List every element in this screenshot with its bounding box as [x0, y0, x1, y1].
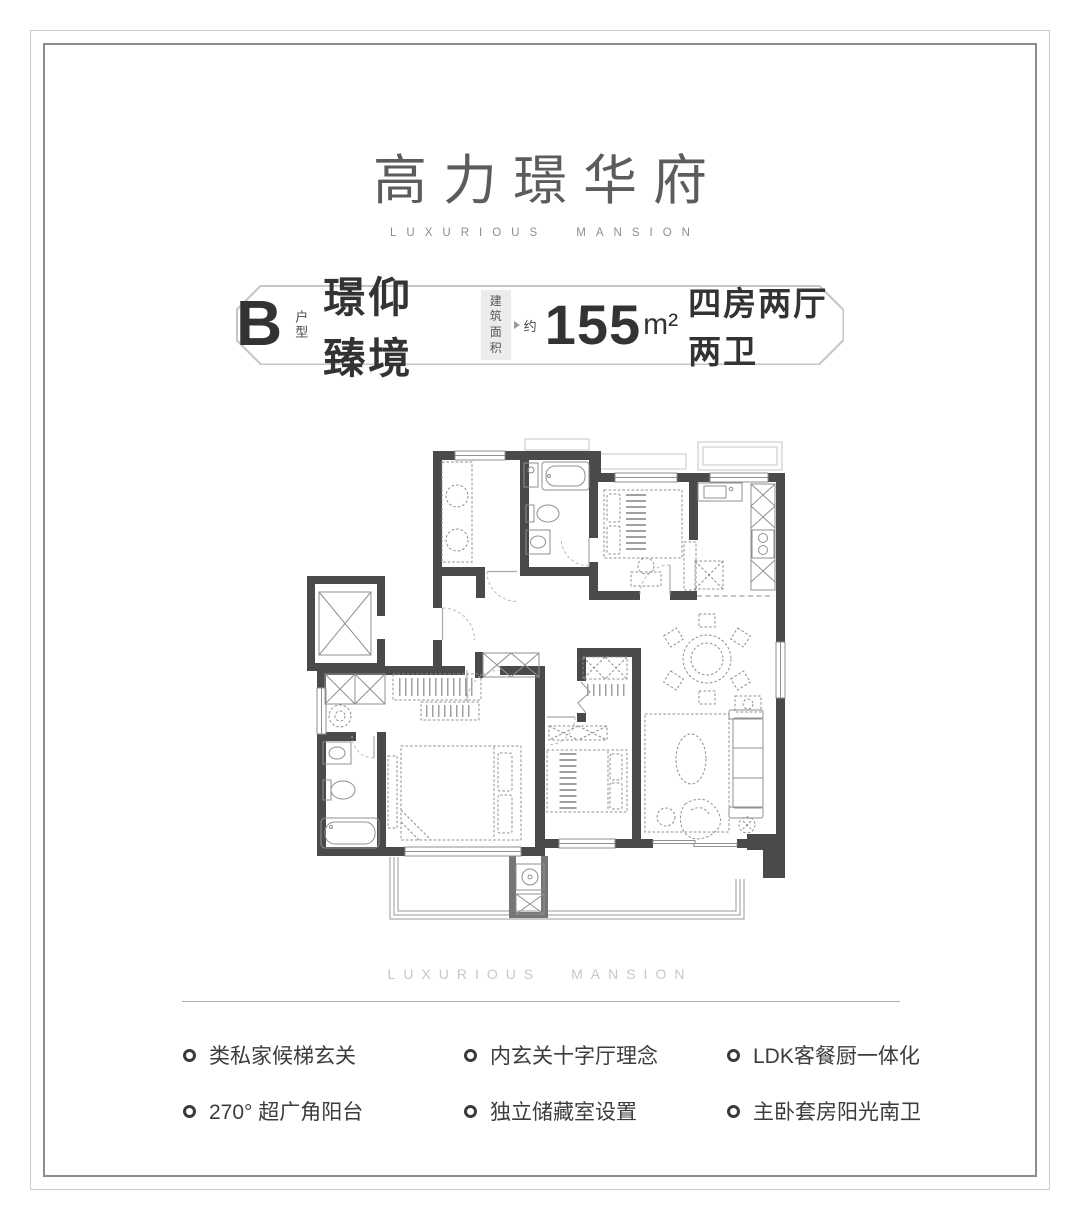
feature-text: 类私家候梯玄关 — [209, 1040, 356, 1070]
living-room-furniture — [645, 696, 763, 839]
kitchen-furniture — [695, 483, 775, 590]
feature-item: 类私家候梯玄关 — [183, 1040, 464, 1070]
brand-title: 高力璟华府 — [0, 136, 1080, 215]
bullet-ring-icon — [183, 1105, 196, 1118]
feature-item: LDK客餐厨一体化 — [727, 1040, 907, 1070]
master-bathroom-furniture — [321, 742, 379, 848]
walls — [307, 451, 785, 918]
unit-letter: B — [236, 291, 282, 355]
feature-text: 主卧套房阳光南卫 — [753, 1096, 921, 1126]
master-dressing-furniture — [325, 674, 481, 727]
feature-item: 270° 超广角阳台 — [183, 1096, 464, 1126]
feature-item: 主卧套房阳光南卫 — [727, 1096, 907, 1126]
bedroom-bottom-center-furniture — [547, 657, 627, 812]
divider-line — [182, 1001, 900, 1002]
divider-caption: LUXURIOUS MANSION — [0, 966, 1080, 982]
feature-text: 内玄关十字厅理念 — [490, 1040, 658, 1070]
master-bedroom-furniture — [388, 746, 521, 840]
feature-item: 独立储藏室设置 — [464, 1096, 727, 1126]
bedroom-top-left-furniture — [442, 462, 472, 562]
feature-list: 类私家候梯玄关 内玄关十字厅理念 LDK客餐厨一体化 270° 超广角阳台 独立… — [183, 1040, 907, 1126]
approx-label: 约 — [524, 316, 537, 335]
bathroom-top-furniture — [524, 462, 589, 554]
area-label-box: 建筑 面积 — [481, 290, 511, 360]
brand-subtitle: LUXURIOUS MANSION — [0, 227, 1080, 239]
balcony-railing — [390, 857, 744, 919]
bullet-ring-icon — [464, 1105, 477, 1118]
bullet-ring-icon — [464, 1049, 477, 1062]
feature-text: LDK客餐厨一体化 — [753, 1040, 920, 1070]
unit-type-label: 户型 — [294, 310, 307, 340]
room-layout-text: 四房两厅两卫 — [688, 277, 844, 373]
feature-item: 内玄关十字厅理念 — [464, 1040, 727, 1070]
area-unit: m² — [643, 308, 678, 342]
windows — [317, 451, 785, 856]
arrow-right-icon — [514, 321, 520, 329]
area-label-line2: 面积 — [490, 325, 502, 355]
unit-badge: B 户型 璟仰臻境 建筑 面积 约 155 m² 四房两厅两卫 — [236, 285, 844, 365]
floor-plan-drawing — [295, 426, 795, 934]
area-label-line1: 建筑 — [490, 294, 502, 324]
elevator-shaft — [319, 592, 371, 655]
dining-set — [664, 614, 751, 704]
unit-name: 璟仰臻境 — [323, 264, 457, 386]
bullet-ring-icon — [183, 1049, 196, 1062]
bedroom-top-right-furniture — [604, 490, 696, 590]
feature-text: 独立储藏室设置 — [490, 1096, 637, 1126]
floor-plan-poster: 高力璟华府 LUXURIOUS MANSION B 户型 璟仰臻境 建筑 面积 … — [0, 0, 1080, 1222]
feature-text: 270° 超广角阳台 — [209, 1096, 363, 1126]
bullet-ring-icon — [727, 1105, 740, 1118]
bullet-ring-icon — [727, 1049, 740, 1062]
balcony-utility-furniture — [516, 864, 544, 914]
unit-badge-content: B 户型 璟仰臻境 建筑 面积 约 155 m² 四房两厅两卫 — [236, 285, 844, 365]
brand-block: 高力璟华府 LUXURIOUS MANSION — [0, 136, 1080, 239]
area-value: 155 — [545, 297, 641, 353]
